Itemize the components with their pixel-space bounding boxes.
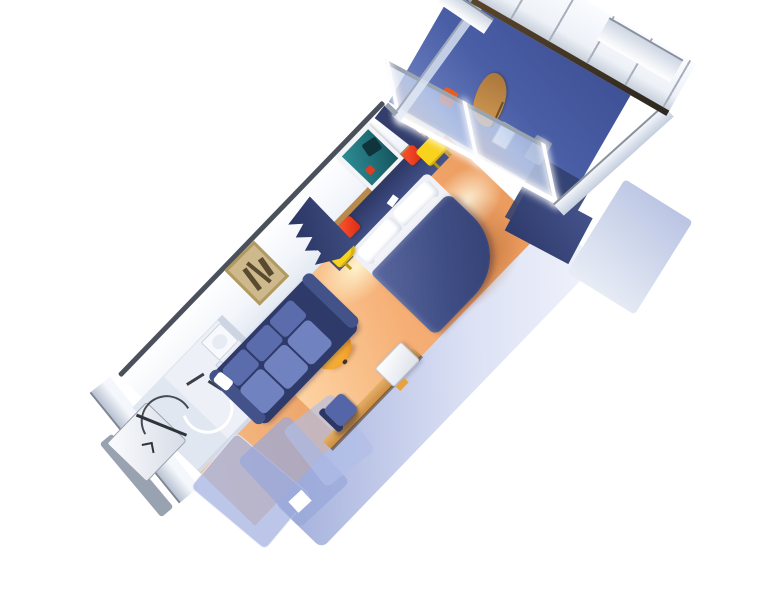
chevron-mark [142, 442, 155, 455]
artwork-red-detail [365, 164, 376, 175]
artwork-dark-detail [361, 136, 382, 157]
stateroom-floorplan-render [0, 0, 758, 590]
outer-deck-slab [567, 179, 693, 315]
